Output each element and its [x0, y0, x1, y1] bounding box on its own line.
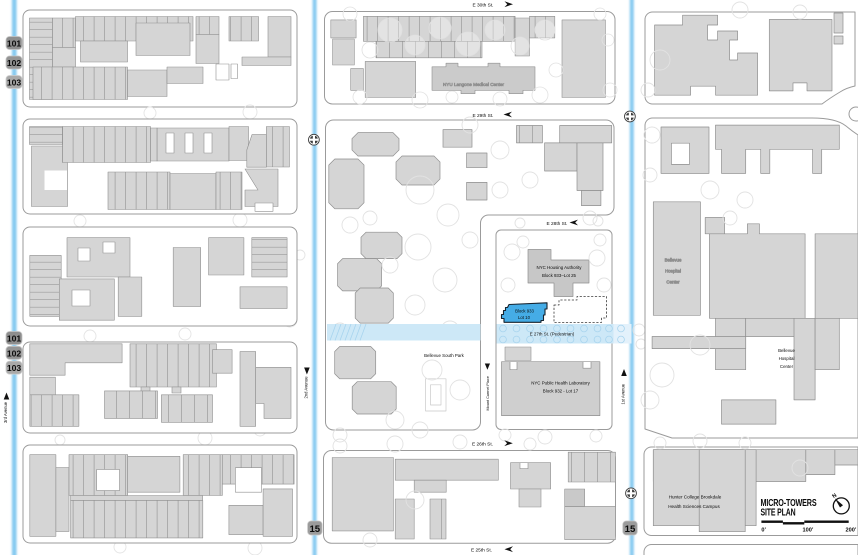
svg-text:Block 933: Block 933 — [515, 308, 534, 313]
svg-text:Mount Carmel Place: Mount Carmel Place — [486, 376, 490, 410]
svg-text:NYC Housing Authority: NYC Housing Authority — [537, 265, 583, 270]
svg-text:Hospital: Hospital — [779, 356, 795, 361]
svg-text:0’: 0’ — [761, 528, 766, 534]
svg-text:Center: Center — [666, 280, 680, 285]
svg-text:NYU Langone Medical Center: NYU Langone Medical Center — [443, 82, 504, 87]
svg-text:NYC Public Health Laboratory: NYC Public Health Laboratory — [531, 381, 590, 386]
svg-text:E 27th St. (Pedestrian): E 27th St. (Pedestrian) — [530, 331, 575, 336]
svg-text:103: 103 — [7, 363, 22, 373]
svg-text:Block 933–Lot 25: Block 933–Lot 25 — [542, 273, 576, 278]
svg-text:15: 15 — [309, 524, 320, 535]
svg-text:Bellevue: Bellevue — [665, 258, 682, 263]
svg-text:101: 101 — [7, 39, 22, 49]
svg-text:E 28th St.: E 28th St. — [546, 221, 567, 227]
svg-text:103: 103 — [7, 78, 22, 88]
svg-text:102: 102 — [7, 58, 22, 68]
svg-text:E 26th St.: E 26th St. — [472, 442, 493, 448]
svg-text:200’: 200’ — [846, 528, 857, 534]
svg-text:3rd Avenue: 3rd Avenue — [3, 401, 8, 423]
svg-text:Block 932 - Lot 17: Block 932 - Lot 17 — [543, 388, 579, 393]
svg-text:Hospital: Hospital — [665, 269, 681, 274]
svg-text:Lot 10: Lot 10 — [518, 315, 531, 320]
svg-text:SITE PLAN: SITE PLAN — [761, 508, 796, 519]
svg-text:Bellevue South Park: Bellevue South Park — [424, 353, 465, 358]
svg-text:1st Avenue: 1st Avenue — [620, 383, 625, 404]
svg-text:Bellevue: Bellevue — [778, 348, 795, 353]
svg-text:E 30th St.: E 30th St. — [472, 3, 493, 9]
svg-text:E 29th St.: E 29th St. — [472, 113, 493, 119]
svg-text:2nd Avenue: 2nd Avenue — [303, 376, 308, 399]
svg-text:Center: Center — [780, 364, 794, 369]
svg-text:Health Sciences Campus: Health Sciences Campus — [668, 504, 720, 509]
svg-text:Hunter College Brookdale: Hunter College Brookdale — [669, 495, 722, 500]
svg-text:15: 15 — [625, 524, 636, 535]
svg-text:100’: 100’ — [803, 528, 814, 534]
svg-text:E 25th St.: E 25th St. — [471, 548, 492, 554]
svg-text:102: 102 — [7, 348, 22, 358]
svg-text:101: 101 — [7, 334, 22, 344]
